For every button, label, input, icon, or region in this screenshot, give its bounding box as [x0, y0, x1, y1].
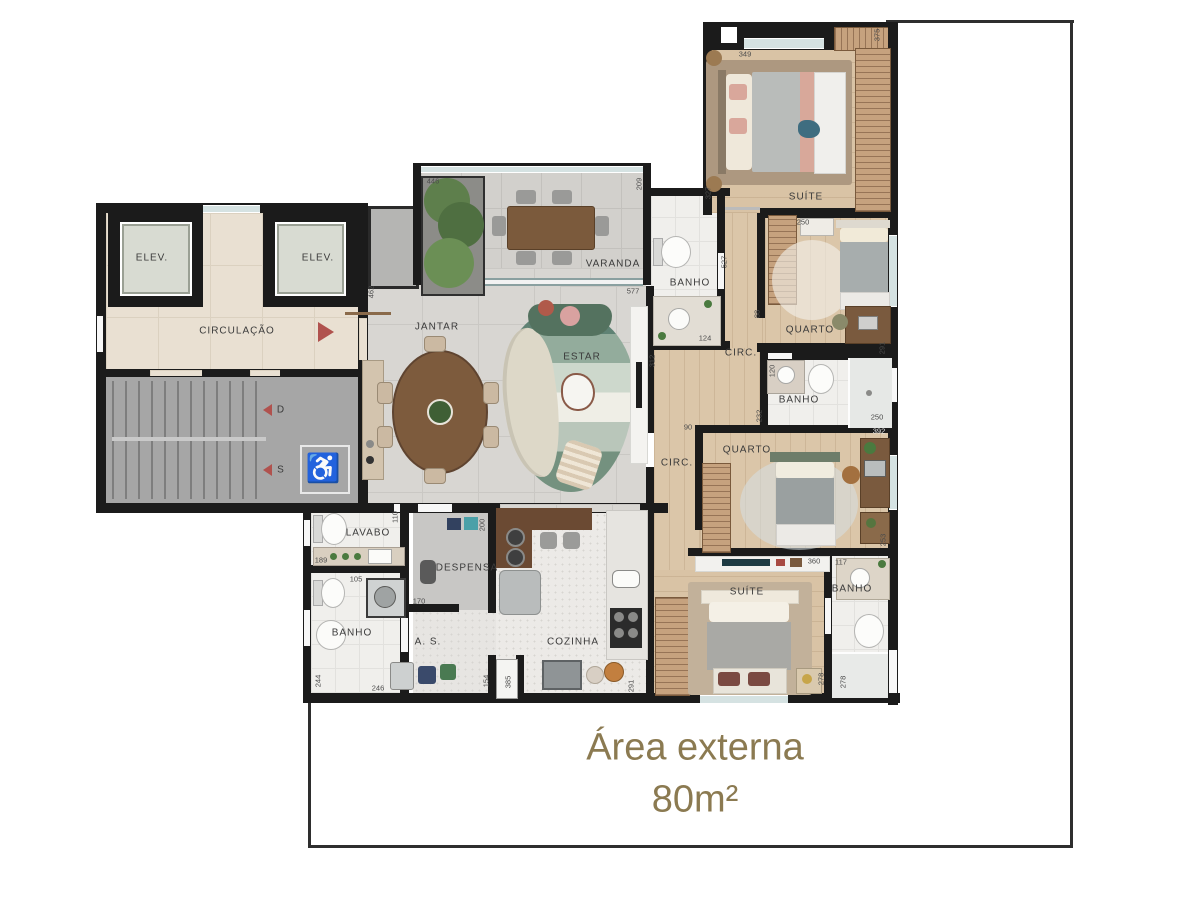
burner: [614, 628, 624, 638]
room-label-suite-top: SUÍTE: [789, 192, 823, 203]
buffet-item: [366, 456, 374, 464]
bed-pillow-pink: [729, 84, 747, 100]
wall-shelf: [345, 312, 391, 315]
dim-88: 88: [753, 310, 762, 318]
table-centerpiece: [427, 399, 453, 425]
bed-throw-blue: [798, 120, 820, 138]
varanda-dining-table: [507, 206, 595, 250]
tv-screen: [636, 362, 642, 408]
quarto1-bed-headboard: [836, 220, 890, 228]
room-label-estar: ESTAR: [563, 352, 601, 363]
storage-box-navy: [447, 518, 461, 530]
dim-200: 200: [478, 519, 487, 532]
room-label-elev1: ELEV.: [136, 253, 168, 264]
stairs-down-arrow: [263, 404, 272, 416]
dim-375: 375: [873, 29, 882, 42]
dim-120: 120: [768, 365, 777, 378]
entry-door-opening: [359, 318, 367, 360]
room-label-cozinha: COZINHA: [547, 637, 599, 648]
external-area-size: 80m²: [652, 779, 739, 822]
external-boundary-bottom: [308, 845, 1073, 848]
dim-349: 349: [739, 50, 752, 59]
plant: [704, 300, 712, 308]
dim-246: 246: [372, 684, 385, 693]
vent-between-elevators: [203, 205, 260, 213]
nightstand-lamp: [802, 674, 812, 684]
dim-392: 392: [873, 427, 886, 436]
varanda-chair: [552, 251, 572, 265]
storage-box-teal: [464, 517, 478, 530]
toilet-bowl: [661, 236, 691, 268]
varanda-rail-glass: [421, 166, 643, 173]
plant: [878, 560, 886, 568]
dim-312: 312: [648, 355, 657, 368]
dim-278a: 278: [817, 673, 826, 686]
dim-250a: 250: [797, 218, 810, 227]
plant: [658, 332, 666, 340]
maroon-pillow: [748, 672, 770, 686]
quarto2-window: [889, 455, 897, 510]
burner: [614, 612, 624, 622]
laundry-basket-navy: [418, 666, 436, 684]
dim-360: 360: [808, 557, 821, 566]
dim-232: 232: [755, 410, 764, 423]
counter-sink: [506, 528, 525, 547]
varanda-chair: [595, 216, 609, 236]
console-item: [776, 559, 785, 566]
room-label-banho-top: BANHO: [670, 278, 711, 289]
technical-shaft: [368, 206, 419, 289]
dining-chair: [424, 468, 446, 484]
dim-253: 253: [879, 534, 888, 547]
console-tv: [722, 559, 770, 566]
room-label-as: A. S.: [415, 637, 442, 648]
dim-278b: 278: [839, 676, 848, 689]
room-label-banho-suite: BANHO: [832, 584, 873, 595]
quarto1-bed-pillows: [840, 228, 888, 242]
quarto1-window: [889, 235, 897, 307]
bed-headboard: [718, 70, 726, 174]
desk-plant: [864, 442, 876, 454]
lavabo-window: [304, 520, 310, 546]
plant: [330, 553, 337, 560]
room-label-circulacao: CIRCULAÇÃO: [199, 326, 275, 337]
dim-110: 110: [391, 511, 400, 523]
dim-327: 327: [704, 187, 713, 200]
suite-bottom-window: [700, 695, 788, 704]
suite2-bed-pillows: [709, 602, 789, 622]
buffet-item: [366, 440, 374, 448]
dim-117: 117: [835, 558, 847, 567]
dim-170: 170: [413, 597, 426, 606]
dim-90: 90: [684, 423, 692, 432]
suite-top-window: [744, 38, 824, 49]
quarto2-bed-foot: [776, 524, 836, 546]
toilet-bowl: [321, 513, 347, 545]
room-label-quarto1: QUARTO: [786, 325, 834, 336]
banho-left-window: [304, 610, 310, 646]
laundry-tank: [390, 662, 414, 690]
dim-291b: 291: [627, 680, 636, 693]
monitor: [542, 660, 582, 690]
dining-chair: [483, 382, 499, 404]
desk-laptop: [858, 316, 878, 330]
dim-250b: 250: [871, 413, 884, 422]
external-boundary-left: [308, 700, 311, 848]
suite-bottom-closet: [655, 597, 690, 696]
room-label-lavabo: LAVABO: [346, 528, 391, 539]
suite-top-closet: [855, 48, 891, 212]
room-label-quarto2: QUARTO: [723, 445, 771, 456]
dim-291a: 291: [878, 342, 887, 355]
quarto2-bed-duvet: [776, 478, 834, 524]
dining-chair: [377, 426, 393, 448]
washer-door: [374, 586, 396, 608]
nightstand: [706, 50, 722, 66]
dim-209: 209: [635, 178, 644, 191]
fridge: [499, 570, 541, 615]
dim-385: 385: [504, 676, 513, 689]
burner: [628, 612, 638, 622]
stairs-down-label: D: [277, 405, 285, 416]
floor-plan: D S ♿: [0, 0, 1200, 900]
desk-chair: [842, 466, 860, 484]
lavabo-sink: [368, 549, 392, 564]
burner: [628, 628, 638, 638]
external-boundary-top: [886, 20, 1074, 23]
side-table-pink: [560, 306, 580, 326]
dining-chair: [483, 426, 499, 448]
kitchen-sink-small: [612, 570, 640, 588]
suite2-bed-duvet: [707, 622, 791, 670]
room-label-circ2: CIRC.: [661, 458, 693, 469]
room-label-banho-mid: BANHO: [779, 395, 820, 406]
banho-mid-door: [766, 353, 792, 359]
maroon-pillow: [718, 672, 740, 686]
varanda-chair: [492, 216, 506, 236]
sink: [777, 366, 795, 384]
console-item: [790, 558, 802, 567]
room-label-circ1: CIRC.: [725, 348, 757, 359]
room-label-varanda: VARANDA: [586, 259, 641, 270]
quarto1-bed-duvet: [840, 242, 888, 292]
flower-vase: [586, 666, 604, 684]
toilet-bowl: [321, 578, 345, 608]
dim-189: 189: [315, 556, 328, 565]
fruit-bowl: [604, 662, 624, 682]
dim-154: 154: [482, 675, 491, 688]
coffee-table: [561, 373, 595, 411]
pillar: [721, 27, 737, 43]
varanda-chair: [516, 190, 536, 204]
dining-chair: [377, 382, 393, 404]
varanda-chair: [516, 251, 536, 265]
room-label-suite-bottom: SUÍTE: [730, 587, 764, 598]
banho-left-door: [401, 618, 408, 652]
tree-foliage: [424, 238, 474, 288]
bar-stool: [540, 532, 557, 549]
quarto2-bed-pillows: [776, 462, 834, 478]
quarto2-bed-headboard: [770, 452, 840, 462]
room-label-jantar: JANTAR: [415, 322, 459, 333]
desk-chair: [832, 314, 848, 330]
toilet-bowl: [854, 614, 884, 648]
bed-mattress-foot: [814, 72, 846, 174]
quarto2-closet: [702, 463, 731, 553]
dim-244: 244: [314, 675, 323, 688]
entry-direction-arrow: [318, 322, 334, 342]
dim-462: 462: [367, 286, 376, 299]
room-label-banho-left: BANHO: [332, 628, 373, 639]
dim-577: 577: [627, 287, 640, 296]
dining-chair: [424, 336, 446, 352]
stair-landing-divider: [112, 437, 266, 441]
dim-105: 105: [350, 575, 363, 584]
varanda-chair: [552, 190, 572, 204]
bed-pillow-pink: [729, 118, 747, 134]
window-left-hall: [97, 316, 103, 352]
banho-suite-window: [889, 650, 897, 695]
wheelchair-icon: ♿: [306, 452, 341, 485]
stairs-up-label: S: [277, 465, 285, 476]
banho-suite-door: [825, 598, 831, 634]
shelf-plant: [866, 518, 876, 528]
plant: [354, 553, 361, 560]
external-boundary-right: [1070, 20, 1073, 848]
circ1-floor: [654, 348, 765, 433]
dim-124: 124: [699, 334, 712, 343]
toilet-bowl: [808, 364, 834, 394]
dim-527: 527: [720, 256, 729, 269]
shower-drain: [866, 390, 872, 396]
room-label-elev2: ELEV.: [302, 253, 334, 264]
room-label-despensa: DESPENSA: [436, 563, 498, 574]
sink: [668, 308, 690, 330]
dim-446: 446: [427, 177, 440, 186]
external-area-title: Área externa: [586, 727, 804, 770]
desk-laptop: [864, 460, 886, 477]
side-table-red: [538, 300, 554, 316]
plant: [342, 553, 349, 560]
stairs-up-arrow: [263, 464, 272, 476]
counter-sink: [506, 548, 525, 567]
laundry-item-green: [440, 664, 456, 680]
vacuum-cleaner: [420, 560, 436, 584]
bar-stool: [563, 532, 580, 549]
